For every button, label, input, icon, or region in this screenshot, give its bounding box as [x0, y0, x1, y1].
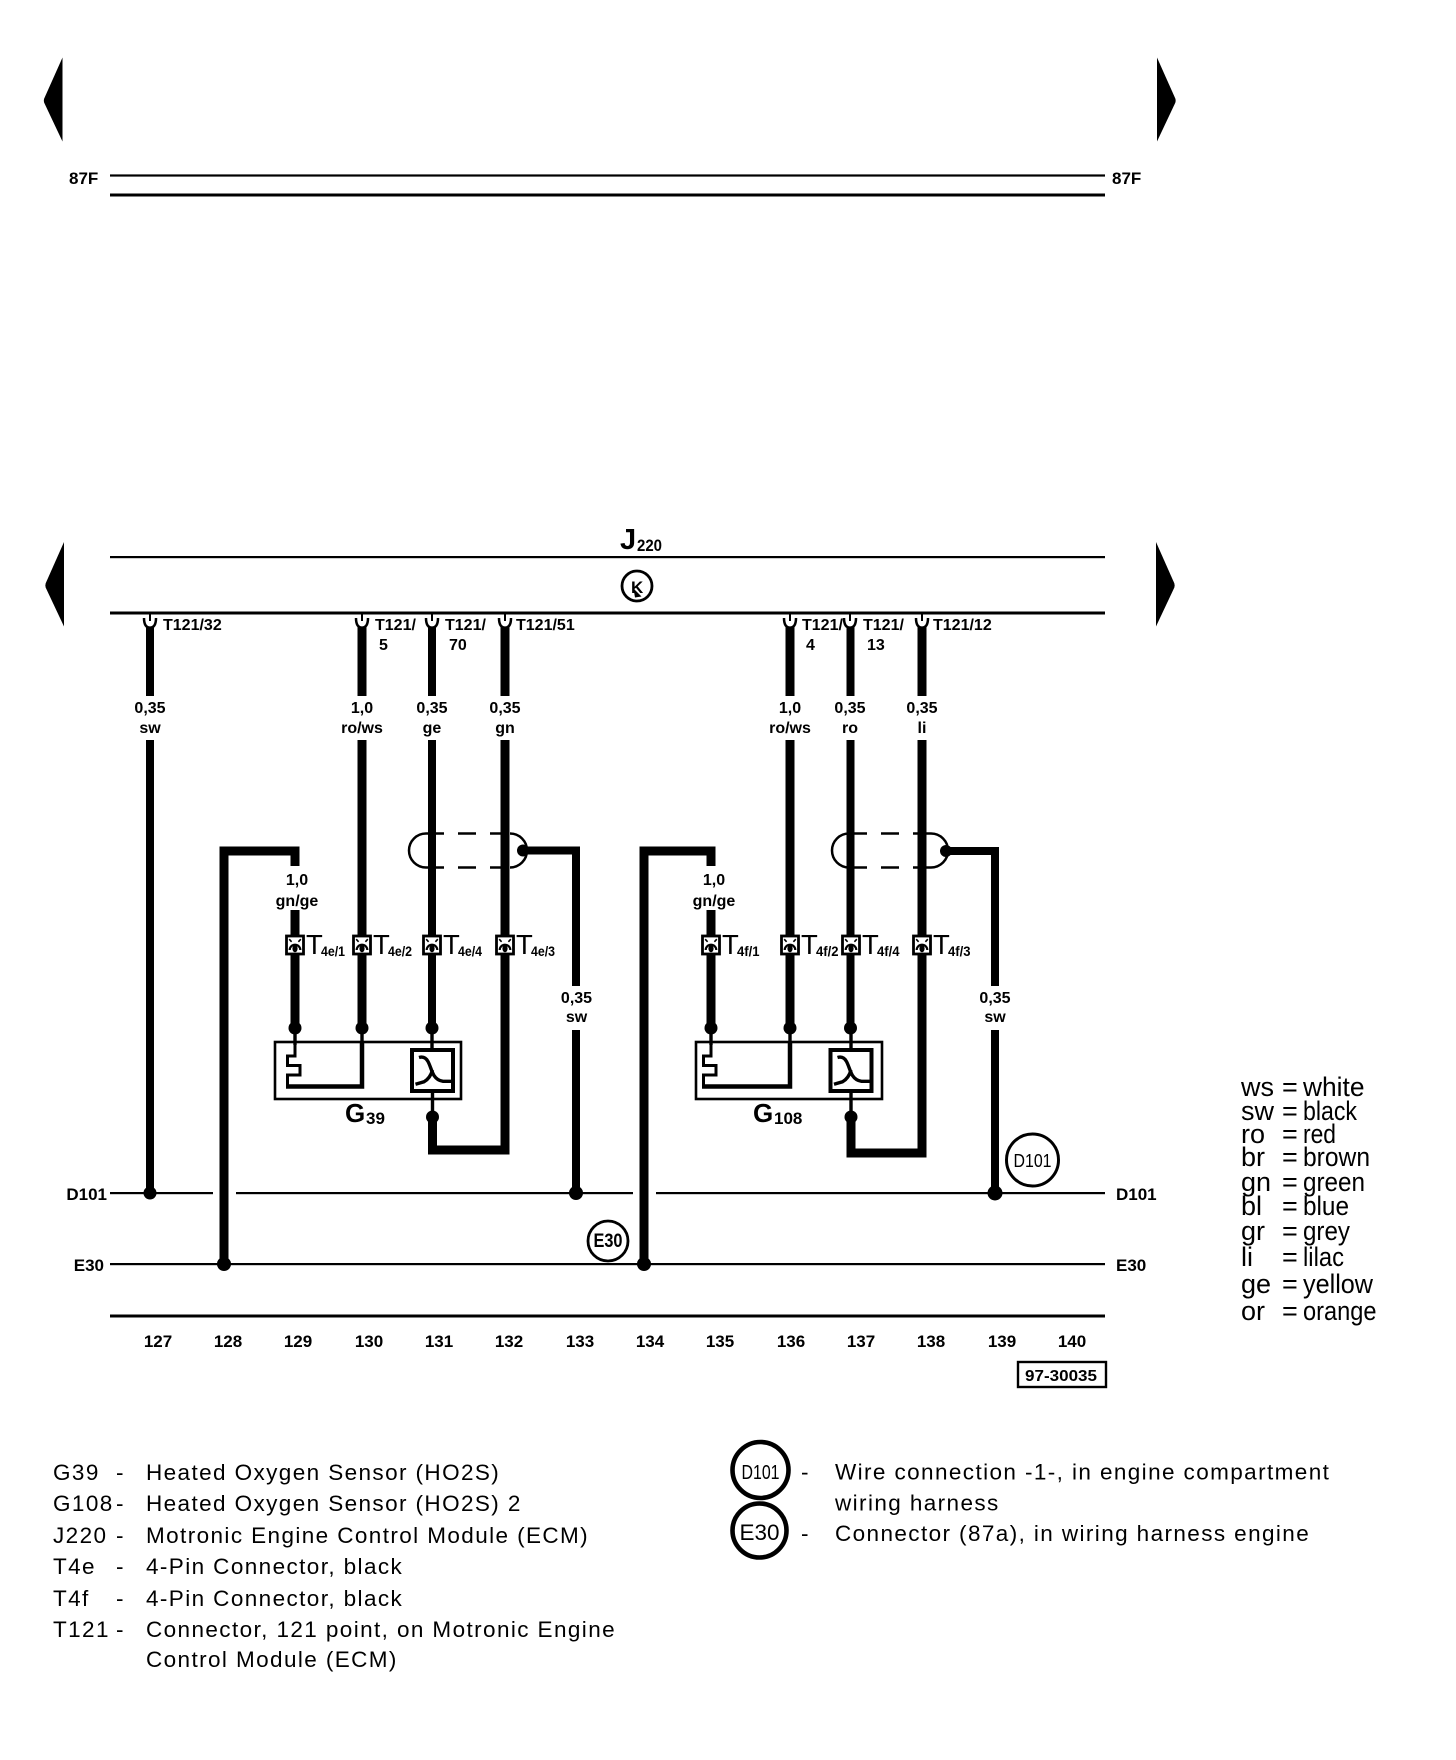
svg-text:gn/ge: gn/ge [276, 893, 319, 910]
svg-text:li: li [1241, 1242, 1253, 1272]
svg-text:orange: orange [1303, 1296, 1377, 1326]
svg-text:T4f: T4f [53, 1586, 90, 1611]
svg-text:T121/: T121/ [802, 617, 843, 634]
svg-text:-: - [116, 1554, 125, 1579]
svg-text:-: - [116, 1460, 125, 1485]
svg-text:yellow: yellow [1303, 1269, 1373, 1299]
svg-text:87F: 87F [1112, 169, 1141, 188]
svg-text:-: - [801, 1521, 810, 1546]
svg-text:wiring harness: wiring harness [834, 1491, 1000, 1516]
svg-text:ro/ws: ro/ws [769, 720, 811, 737]
svg-text:ro: ro [842, 720, 858, 737]
svg-text:D101: D101 [66, 1185, 107, 1204]
svg-text:1,0: 1,0 [703, 872, 725, 889]
svg-text:132: 132 [495, 1332, 523, 1351]
svg-text:-: - [116, 1586, 125, 1611]
svg-text:gn/ge: gn/ge [693, 893, 736, 910]
svg-text:87F: 87F [69, 169, 98, 188]
svg-text:T121/12: T121/12 [933, 617, 992, 634]
svg-text:1,0: 1,0 [779, 700, 801, 717]
svg-text:T121/: T121/ [445, 617, 486, 634]
svg-text:G: G [345, 1098, 365, 1128]
svg-text:Connector (87a), in wiring har: Connector (87a), in wiring harness engin… [835, 1521, 1310, 1546]
svg-text:140: 140 [1058, 1332, 1086, 1351]
svg-text:0,35: 0,35 [906, 700, 937, 717]
svg-text:1,0: 1,0 [286, 872, 308, 889]
svg-text:-: - [116, 1523, 125, 1548]
svg-text:E30: E30 [1116, 1256, 1146, 1275]
svg-text:D101: D101 [1116, 1185, 1157, 1204]
svg-text:108: 108 [774, 1109, 802, 1128]
svg-text:4-Pin Connector, black: 4-Pin Connector, black [146, 1554, 403, 1579]
svg-text:127: 127 [144, 1332, 172, 1351]
svg-text:97-30035: 97-30035 [1025, 1368, 1097, 1385]
svg-text:4e/2: 4e/2 [388, 943, 412, 959]
svg-text:D101: D101 [1014, 1150, 1052, 1171]
svg-text:Connector, 121 point, on Motro: Connector, 121 point, on Motronic Engine [146, 1617, 616, 1642]
svg-text:4e/3: 4e/3 [531, 943, 555, 959]
svg-text:4e/1: 4e/1 [321, 943, 345, 959]
svg-text:gn: gn [495, 720, 515, 737]
svg-text:lilac: lilac [1303, 1242, 1344, 1272]
svg-text:136: 136 [777, 1332, 805, 1351]
svg-text:135: 135 [706, 1332, 734, 1351]
svg-text:128: 128 [214, 1332, 242, 1351]
svg-text:ge: ge [423, 720, 442, 737]
svg-text:=: = [1282, 1242, 1298, 1272]
svg-text:4f/3: 4f/3 [948, 943, 971, 959]
svg-text:-: - [116, 1617, 125, 1642]
svg-text:138: 138 [917, 1332, 945, 1351]
svg-text:129: 129 [284, 1332, 312, 1351]
svg-text:4-Pin Connector, black: 4-Pin Connector, black [146, 1586, 403, 1611]
svg-text:130: 130 [355, 1332, 383, 1351]
svg-text:13: 13 [867, 637, 885, 654]
svg-text:G108: G108 [53, 1491, 114, 1516]
svg-text:220: 220 [637, 536, 662, 555]
svg-text:li: li [918, 720, 927, 737]
svg-text:-: - [116, 1491, 125, 1516]
svg-text:4: 4 [806, 637, 815, 654]
svg-text:0,35: 0,35 [134, 700, 165, 717]
svg-text:sw: sw [984, 1009, 1006, 1026]
svg-text:J220: J220 [53, 1523, 107, 1548]
svg-text:E30: E30 [740, 1520, 780, 1545]
svg-text:137: 137 [847, 1332, 875, 1351]
svg-text:T121/32: T121/32 [163, 617, 222, 634]
svg-text:ge: ge [1241, 1269, 1271, 1299]
svg-text:0,35: 0,35 [834, 700, 865, 717]
svg-text:E30: E30 [594, 1231, 623, 1252]
svg-text:0,35: 0,35 [561, 990, 592, 1007]
svg-text:39: 39 [366, 1109, 385, 1128]
svg-text:sw: sw [139, 720, 161, 737]
svg-text:sw: sw [566, 1009, 588, 1026]
svg-text:E30: E30 [74, 1256, 104, 1275]
svg-text:4f/4: 4f/4 [877, 943, 900, 959]
svg-text:139: 139 [988, 1332, 1016, 1351]
svg-text:Heated Oxygen Sensor (HO2S) 2: Heated Oxygen Sensor (HO2S) 2 [146, 1491, 522, 1516]
svg-text:4e/4: 4e/4 [458, 943, 482, 959]
svg-text:T121/: T121/ [375, 617, 416, 634]
svg-text:133: 133 [566, 1332, 594, 1351]
svg-text:=: = [1282, 1296, 1298, 1326]
svg-text:ro/ws: ro/ws [341, 720, 383, 737]
svg-text:4f/2: 4f/2 [816, 943, 839, 959]
svg-text:0,35: 0,35 [489, 700, 520, 717]
svg-text:Control Module (ECM): Control Module (ECM) [146, 1647, 398, 1672]
svg-text:J: J [620, 524, 636, 556]
svg-text:T121/51: T121/51 [516, 617, 575, 634]
svg-text:Wire connection -1-, in engine: Wire connection -1-, in engine compartme… [835, 1460, 1330, 1485]
svg-text:Motronic Engine Control Module: Motronic Engine Control Module (ECM) [146, 1523, 589, 1548]
svg-text:134: 134 [636, 1332, 665, 1351]
svg-text:=: = [1282, 1269, 1298, 1299]
svg-text:131: 131 [425, 1332, 453, 1351]
svg-text:or: or [1241, 1296, 1265, 1326]
svg-text:Heated Oxygen Sensor (HO2S): Heated Oxygen Sensor (HO2S) [146, 1460, 500, 1485]
svg-text:-: - [801, 1460, 810, 1485]
svg-text:D101: D101 [742, 1462, 780, 1484]
svg-text:T4e: T4e [53, 1554, 96, 1579]
svg-text:70: 70 [449, 637, 467, 654]
svg-text:G: G [753, 1098, 773, 1128]
svg-text:0,35: 0,35 [416, 700, 447, 717]
svg-text:T121/: T121/ [863, 617, 904, 634]
svg-text:T121: T121 [53, 1617, 110, 1642]
svg-text:5: 5 [379, 637, 388, 654]
svg-text:G39: G39 [53, 1460, 100, 1485]
svg-text:0,35: 0,35 [979, 990, 1010, 1007]
svg-text:4f/1: 4f/1 [737, 943, 760, 959]
svg-text:1,0: 1,0 [351, 700, 373, 717]
